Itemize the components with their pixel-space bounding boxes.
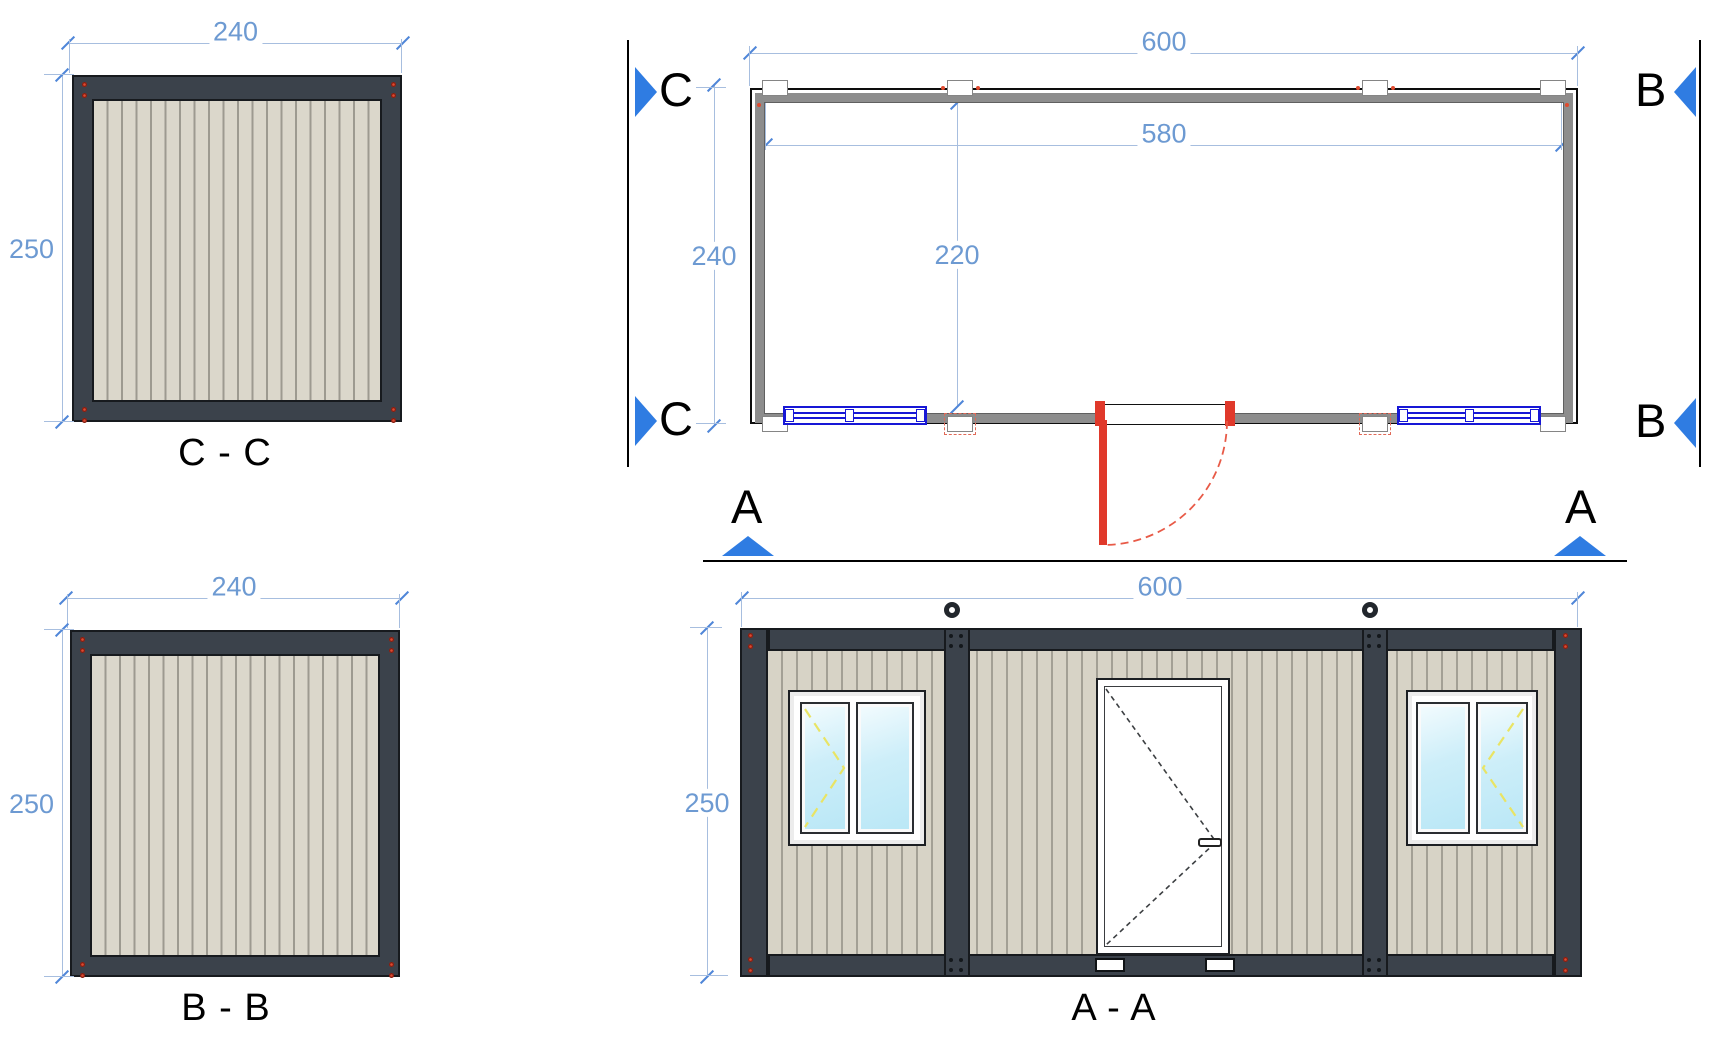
extension-line bbox=[44, 421, 74, 422]
bb-frame bbox=[70, 630, 400, 977]
extension-line bbox=[399, 594, 400, 628]
aa-top-rail bbox=[768, 628, 1554, 651]
window-pane-fixed bbox=[1416, 702, 1470, 834]
rivet-dot bbox=[389, 648, 394, 653]
rivet-dot bbox=[391, 82, 396, 87]
plan-joint-plate bbox=[947, 416, 973, 432]
plan-wall bbox=[755, 93, 1573, 423]
window-pane-openable bbox=[1476, 702, 1528, 834]
bolt-dot bbox=[959, 634, 963, 638]
dimension-value: 240 bbox=[209, 17, 262, 45]
rivet-dot bbox=[391, 93, 396, 98]
lifting-lug bbox=[944, 602, 960, 618]
rivet-dot bbox=[80, 973, 85, 978]
plan-window-mullion bbox=[1399, 409, 1408, 422]
bolt-dot bbox=[1367, 634, 1371, 638]
plan-window-mullion bbox=[845, 409, 854, 422]
view-label-aa: A - A bbox=[1014, 989, 1214, 1027]
window-pane-openable bbox=[800, 702, 850, 834]
extension-line bbox=[44, 976, 74, 977]
rivet-dot bbox=[80, 637, 85, 642]
bolt-dot bbox=[1367, 968, 1371, 972]
red-marker-dot bbox=[1356, 86, 1360, 90]
rivet-dot bbox=[748, 957, 753, 962]
section-arrow-a-left bbox=[722, 536, 774, 556]
rivet-dot bbox=[748, 968, 753, 973]
cc-frame bbox=[72, 75, 402, 422]
lifting-lug bbox=[1362, 602, 1378, 618]
elevation-window bbox=[788, 690, 926, 846]
view-label-bb: B - B bbox=[126, 989, 326, 1027]
bolt-dot bbox=[959, 968, 963, 972]
bolt-dot bbox=[949, 634, 953, 638]
dimension-value: 600 bbox=[1137, 27, 1190, 55]
bolt-dot bbox=[949, 958, 953, 962]
section-letter-a-left: A bbox=[731, 483, 762, 530]
extension-line bbox=[44, 629, 74, 630]
door-handle bbox=[1198, 838, 1222, 847]
section-letter-a-right: A bbox=[1565, 483, 1596, 530]
extension-line bbox=[690, 627, 722, 628]
section-letter-c-bottom: C bbox=[659, 395, 693, 442]
rivet-dot bbox=[82, 407, 87, 412]
elevation-window bbox=[1406, 690, 1538, 846]
rivet-dot bbox=[82, 82, 87, 87]
rivet-dot bbox=[748, 633, 753, 638]
red-marker-dot bbox=[1565, 103, 1569, 107]
aa-joint-stud bbox=[1362, 628, 1388, 977]
aa-bottom-rail bbox=[768, 954, 1554, 977]
red-marker-dot bbox=[1391, 86, 1395, 90]
plan-corner-plate bbox=[1540, 80, 1566, 96]
bolt-dot bbox=[949, 968, 953, 972]
bolt-dot bbox=[1367, 644, 1371, 648]
dimension-value: 250 bbox=[5, 789, 58, 817]
red-marker-dot bbox=[941, 86, 945, 90]
extension-line bbox=[401, 39, 402, 73]
extension-line bbox=[44, 74, 74, 75]
rivet-dot bbox=[389, 637, 394, 642]
section-line-c bbox=[627, 40, 629, 467]
dimension-value: 250 bbox=[5, 234, 58, 262]
rivet-dot bbox=[391, 418, 396, 423]
plan-window-frame-line bbox=[788, 412, 922, 414]
section-line-b bbox=[1699, 40, 1701, 467]
rivet-dot bbox=[389, 973, 394, 978]
section-arrow-b-bottom bbox=[1674, 398, 1696, 448]
extension-line bbox=[696, 87, 726, 88]
dimension-value: 250 bbox=[680, 788, 733, 816]
dimension-value: 600 bbox=[1133, 572, 1186, 600]
bolt-dot bbox=[1377, 644, 1381, 648]
bolt-dot bbox=[1367, 958, 1371, 962]
vent-slot bbox=[1095, 958, 1125, 972]
plan-window-frame-line bbox=[788, 417, 922, 419]
plan-window bbox=[783, 406, 927, 425]
window-pane-fixed bbox=[856, 702, 914, 834]
plan-joint-plate bbox=[947, 80, 973, 96]
aa-joint-stud bbox=[944, 628, 970, 977]
bolt-dot bbox=[1377, 958, 1381, 962]
section-arrow-a-right bbox=[1554, 536, 1606, 556]
red-marker-dot bbox=[757, 103, 761, 107]
rivet-dot bbox=[82, 418, 87, 423]
vent-slot bbox=[1205, 958, 1235, 972]
plan-window-mullion bbox=[916, 409, 925, 422]
aa-corner-post bbox=[740, 628, 768, 977]
opening-direction-icon bbox=[1478, 704, 1526, 832]
view-label-cc: C - C bbox=[125, 434, 325, 472]
plan-joint-plate bbox=[1362, 80, 1388, 96]
bolt-dot bbox=[959, 644, 963, 648]
rivet-dot bbox=[82, 93, 87, 98]
extension-line bbox=[749, 46, 750, 86]
bb-siding bbox=[90, 654, 380, 957]
plan-joint-plate bbox=[1362, 416, 1388, 432]
plan-corner-plate bbox=[1540, 416, 1566, 432]
rivet-dot bbox=[748, 644, 753, 649]
section-letter-c-top: C bbox=[659, 66, 693, 113]
dimension-line bbox=[62, 630, 63, 977]
rivet-dot bbox=[1563, 957, 1568, 962]
dimension-value: 240 bbox=[687, 241, 740, 269]
aa-corner-post bbox=[1554, 628, 1582, 977]
cc-siding bbox=[92, 99, 382, 402]
opening-direction-icon bbox=[802, 704, 848, 832]
dimension-value: 240 bbox=[207, 572, 260, 600]
bolt-dot bbox=[959, 958, 963, 962]
dimension-line bbox=[62, 75, 63, 422]
bolt-dot bbox=[1377, 634, 1381, 638]
section-arrow-b-top bbox=[1674, 67, 1696, 117]
technical-drawing-canvas: 240 250 C - C bbox=[0, 0, 1736, 1052]
rivet-dot bbox=[1563, 968, 1568, 973]
plan-window-mullion bbox=[1465, 409, 1474, 422]
section-line-a bbox=[703, 560, 1627, 562]
plan-window bbox=[1397, 406, 1541, 425]
elevation-door bbox=[1096, 678, 1230, 955]
door-swing-symbol bbox=[1098, 680, 1228, 953]
section-letter-b-top: B bbox=[1635, 66, 1666, 113]
extension-line bbox=[741, 592, 742, 627]
rivet-dot bbox=[1563, 644, 1568, 649]
plan-corner-plate bbox=[762, 80, 788, 96]
section-arrow-c-top bbox=[635, 67, 657, 117]
section-letter-b-bottom: B bbox=[1635, 397, 1666, 444]
bolt-dot bbox=[1377, 968, 1381, 972]
rivet-dot bbox=[80, 962, 85, 967]
extension-line bbox=[1577, 46, 1578, 86]
rivet-dot bbox=[389, 962, 394, 967]
plan-window-mullion bbox=[785, 409, 794, 422]
bolt-dot bbox=[949, 644, 953, 648]
extension-line bbox=[1577, 592, 1578, 627]
extension-line bbox=[690, 975, 728, 976]
plan-window-mullion bbox=[1530, 409, 1539, 422]
extension-line bbox=[696, 423, 726, 424]
rivet-dot bbox=[1563, 633, 1568, 638]
section-arrow-c-bottom bbox=[635, 396, 657, 446]
rivet-dot bbox=[80, 648, 85, 653]
plan-door-swing-arc bbox=[1100, 414, 1240, 554]
extension-line bbox=[69, 39, 70, 73]
red-marker-dot bbox=[976, 86, 980, 90]
rivet-dot bbox=[391, 407, 396, 412]
